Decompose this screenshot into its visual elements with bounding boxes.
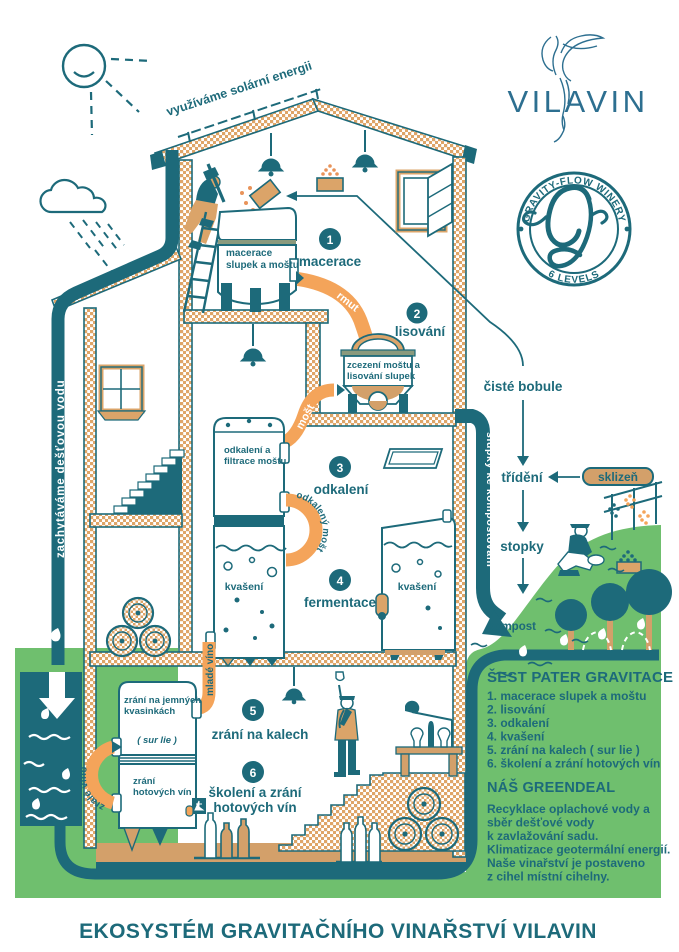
svg-text:macerace: macerace — [226, 248, 273, 259]
svg-text:kvasinkách: kvasinkách — [124, 706, 175, 717]
svg-text:třídění: třídění — [501, 470, 544, 485]
svg-text:k zavlažování sadu.: k zavlažování sadu. — [487, 829, 598, 843]
svg-text:EKOSYSTÉM GRAVITAČNÍHO VINAŘST: EKOSYSTÉM GRAVITAČNÍHO VINAŘSTVÍ VILAVIN — [79, 919, 597, 943]
svg-text:mladé víno: mladé víno — [205, 644, 216, 696]
svg-text:filtrace moštu: filtrace moštu — [224, 456, 286, 467]
svg-text:3: 3 — [337, 461, 344, 475]
svg-text:lisování: lisování — [395, 324, 447, 339]
svg-text:2. lisování: 2. lisování — [487, 703, 546, 717]
svg-text:lisování slupek: lisování slupek — [347, 371, 416, 382]
svg-text:zcezení moštu a: zcezení moštu a — [347, 360, 421, 371]
svg-text:Klimatizace geotermální energi: Klimatizace geotermální energií. — [487, 843, 670, 857]
svg-text:Recyklace oplachové vody a: Recyklace oplachové vody a — [487, 802, 650, 816]
svg-text:kompost: kompost — [488, 621, 536, 633]
svg-text:5: 5 — [250, 704, 257, 718]
svg-text:kvašení: kvašení — [398, 581, 438, 593]
svg-text:stopky: stopky — [500, 539, 544, 554]
svg-text:zrání: zrání — [133, 776, 156, 787]
svg-text:zrání na jemných: zrání na jemných — [124, 695, 201, 706]
svg-text:ŠEST PATER GRAVITACE: ŠEST PATER GRAVITACE — [487, 668, 673, 686]
svg-text:( sur lie ): ( sur lie ) — [137, 735, 177, 746]
svg-text:Naše vinařství je postaveno: Naše vinařství je postaveno — [487, 856, 645, 870]
svg-text:čisté bobule: čisté bobule — [484, 379, 563, 394]
svg-text:5. zrání na kalech ( sur lie ): 5. zrání na kalech ( sur lie ) — [487, 743, 640, 757]
svg-text:hotových vín: hotových vín — [133, 787, 192, 798]
svg-text:odkalení: odkalení — [314, 482, 370, 497]
svg-text:kvašení: kvašení — [225, 581, 265, 593]
svg-text:6: 6 — [250, 766, 257, 780]
svg-text:hotových vín: hotových vín — [213, 800, 296, 815]
svg-text:6. školení a zrání hotových ví: 6. školení a zrání hotových vín — [487, 757, 660, 771]
svg-text:1: 1 — [327, 233, 334, 247]
svg-text:2: 2 — [414, 307, 421, 321]
svg-text:sběr dešťové vody: sběr dešťové vody — [487, 816, 594, 830]
svg-text:školení a zrání: školení a zrání — [208, 785, 302, 800]
svg-text:sklizeň: sklizeň — [598, 470, 638, 484]
svg-text:fermentace: fermentace — [304, 595, 377, 610]
svg-text:4: 4 — [337, 574, 344, 588]
svg-text:odkalení a: odkalení a — [224, 445, 271, 456]
svg-text:zrání na kalech: zrání na kalech — [212, 727, 309, 742]
svg-text:1. macerace slupek a moštu: 1. macerace slupek a moštu — [487, 689, 646, 703]
svg-text:macerace: macerace — [299, 254, 362, 269]
svg-text:3. odkalení: 3. odkalení — [487, 716, 550, 730]
svg-text:z cihel místní cihelny.: z cihel místní cihelny. — [487, 870, 609, 884]
svg-text:4. kvašení: 4. kvašení — [487, 730, 545, 744]
svg-text:zachytáváme dešťovou vodu: zachytáváme dešťovou vodu — [55, 380, 67, 558]
svg-text:slupky ke kompostování: slupky ke kompostování — [484, 432, 496, 568]
svg-text:NÁŠ GREENDEAL: NÁŠ GREENDEAL — [487, 778, 615, 796]
svg-text:slupek a moštu: slupek a moštu — [226, 260, 299, 271]
svg-text:VILAVIN: VILAVIN — [507, 84, 648, 119]
